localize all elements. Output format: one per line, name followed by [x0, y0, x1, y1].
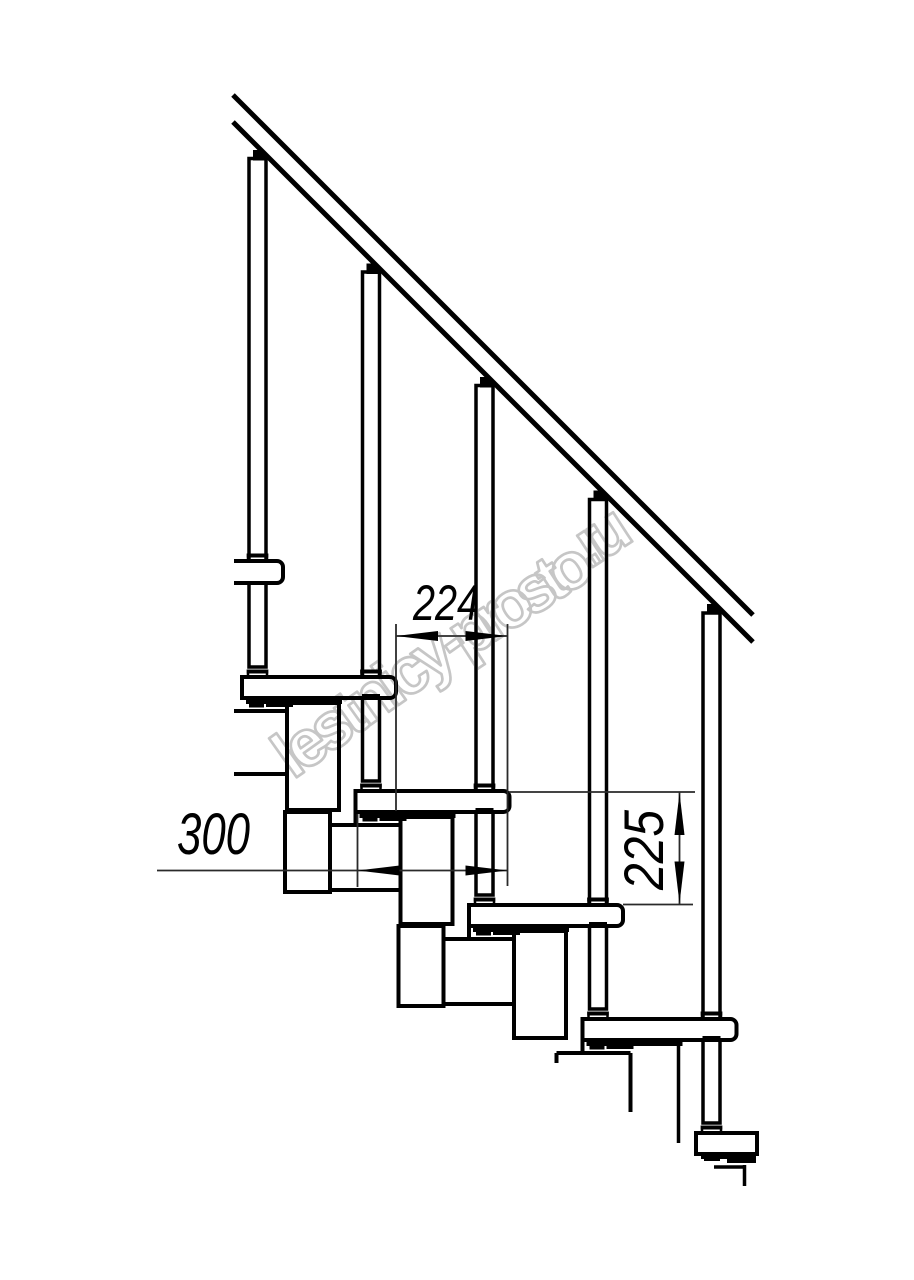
svg-text:225: 225: [612, 809, 675, 891]
svg-text:300: 300: [177, 802, 250, 867]
